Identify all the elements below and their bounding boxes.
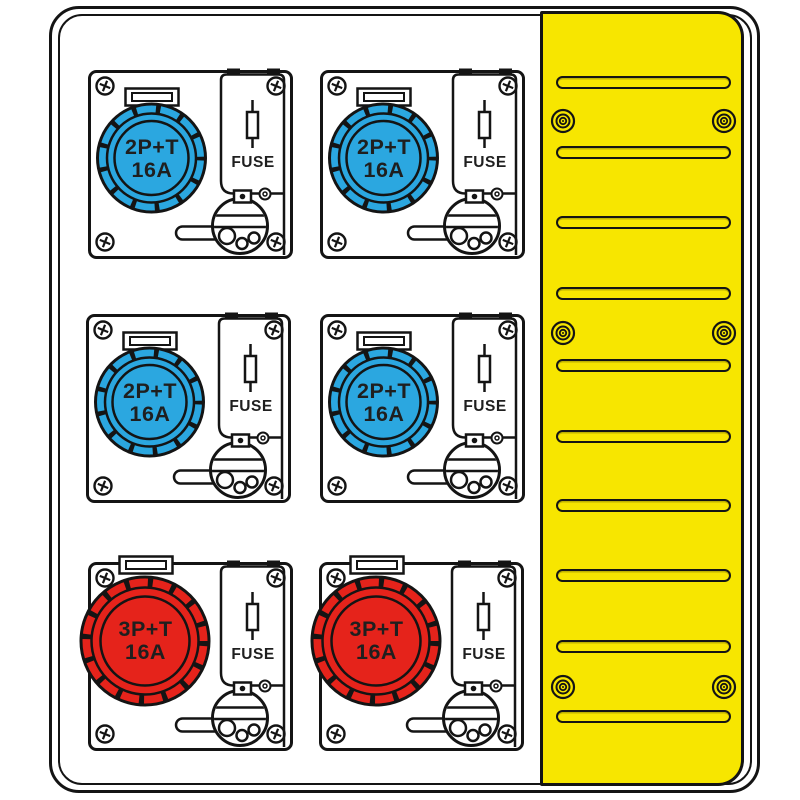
cover-screw-icon	[550, 108, 576, 134]
socket-rating-label: 2P+T 16A	[320, 136, 448, 181]
socket-module-6: 3P+T 16A FUSE	[319, 562, 524, 751]
socket-module-3: 2P+T 16A FUSE	[86, 314, 291, 503]
cover-screw-icon	[550, 674, 576, 700]
distribution-board-diagram: 2P+T 16A FUSE 2P+T 16A FUSE 2P+T 16A FUS…	[0, 0, 800, 800]
socket-rating-label: 3P+T 16A	[88, 618, 203, 663]
vent-slot	[556, 359, 731, 372]
vent-slot	[556, 640, 731, 653]
socket-amp-text: 16A	[88, 641, 203, 664]
fuse-label: FUSE	[221, 646, 285, 664]
socket-type-text: 2P+T	[88, 136, 216, 159]
vent-slot	[556, 430, 731, 443]
socket-amp-text: 16A	[88, 159, 216, 182]
fuse-label: FUSE	[221, 154, 285, 172]
socket-module-2: 2P+T 16A FUSE	[320, 70, 525, 259]
socket-rating-label: 2P+T 16A	[320, 380, 448, 425]
vent-slot	[556, 216, 731, 229]
socket-module-4: 2P+T 16A FUSE	[320, 314, 525, 503]
socket-type-text: 2P+T	[86, 380, 214, 403]
fuse-label: FUSE	[219, 398, 283, 416]
cover-screw-icon	[711, 674, 737, 700]
socket-rating-label: 2P+T 16A	[88, 136, 216, 181]
vent-slot	[556, 287, 731, 300]
fuse-label: FUSE	[453, 154, 517, 172]
cover-screw-icon	[711, 320, 737, 346]
vent-slot	[556, 146, 731, 159]
fuse-label: FUSE	[453, 398, 517, 416]
socket-type-text: 2P+T	[320, 136, 448, 159]
socket-amp-text: 16A	[320, 403, 448, 426]
socket-type-text: 3P+T	[88, 618, 203, 641]
socket-amp-text: 16A	[86, 403, 214, 426]
socket-rating-label: 3P+T 16A	[319, 618, 434, 663]
socket-amp-text: 16A	[319, 641, 434, 664]
vent-slot	[556, 499, 731, 512]
socket-type-text: 2P+T	[320, 380, 448, 403]
vent-slot	[556, 76, 731, 89]
vent-slot	[556, 569, 731, 582]
cover-screw-icon	[550, 320, 576, 346]
fuse-label: FUSE	[452, 646, 516, 664]
vent-slot	[556, 710, 731, 723]
socket-rating-label: 2P+T 16A	[86, 380, 214, 425]
cable-cover-panel	[540, 11, 744, 786]
socket-module-5: 3P+T 16A FUSE	[88, 562, 293, 751]
cover-screw-icon	[711, 108, 737, 134]
socket-type-text: 3P+T	[319, 618, 434, 641]
socket-amp-text: 16A	[320, 159, 448, 182]
socket-module-1: 2P+T 16A FUSE	[88, 70, 293, 259]
